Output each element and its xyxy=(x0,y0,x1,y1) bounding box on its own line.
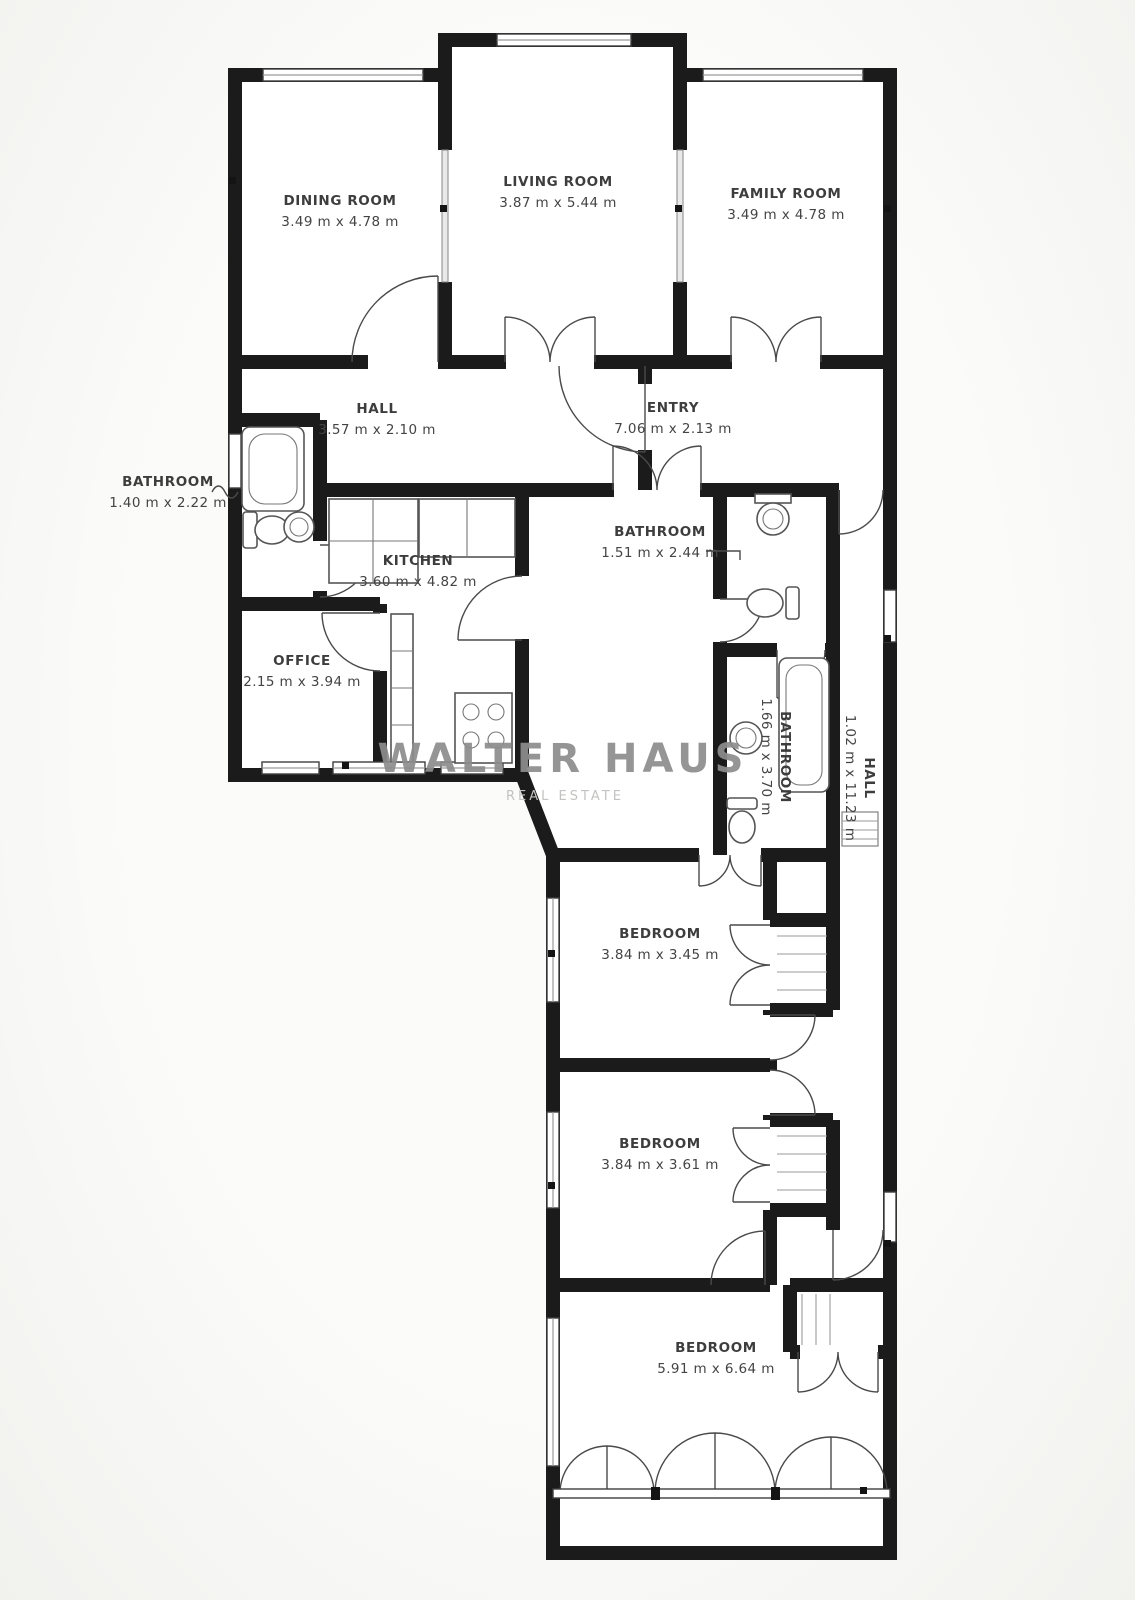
toilet-middle-bathroom xyxy=(747,587,799,619)
bathtub-left xyxy=(242,427,304,511)
svg-text:1.40 m x 2.22 m: 1.40 m x 2.22 m xyxy=(109,495,227,511)
glazed-partition-left xyxy=(442,150,448,282)
svg-text:1.66 m x 3.70 m: 1.66 m x 3.70 m xyxy=(758,698,774,816)
sink-middle-bathroom xyxy=(755,494,791,535)
toilet-inner-bathroom xyxy=(727,798,757,843)
svg-text:DINING ROOM: DINING ROOM xyxy=(283,193,396,209)
svg-text:5.91 m x 6.64 m: 5.91 m x 6.64 m xyxy=(657,1361,775,1377)
watermark-subtitle: REAL ESTATE xyxy=(506,789,624,804)
svg-text:1.51 m x 2.44 m: 1.51 m x 2.44 m xyxy=(601,545,719,561)
svg-text:7.06 m x 2.13 m: 7.06 m x 2.13 m xyxy=(614,421,732,437)
svg-text:3.84 m x 3.61 m: 3.84 m x 3.61 m xyxy=(601,1157,719,1173)
svg-text:3.84 m x 3.45 m: 3.84 m x 3.45 m xyxy=(601,947,719,963)
room-label-bathroom-left: BATHROOM 1.40 m x 2.22 m xyxy=(109,474,238,511)
svg-text:BEDROOM: BEDROOM xyxy=(619,926,701,942)
glazed-partition-right xyxy=(677,150,683,282)
svg-text:3.49 m x 4.78 m: 3.49 m x 4.78 m xyxy=(727,207,845,223)
watermark-title: WALTER HAUS xyxy=(378,736,749,782)
svg-text:BATHROOM: BATHROOM xyxy=(614,524,706,540)
balcony-sill xyxy=(553,1487,890,1500)
svg-text:ENTRY: ENTRY xyxy=(647,400,699,416)
svg-text:2.15 m x 3.94 m: 2.15 m x 3.94 m xyxy=(243,674,361,690)
svg-text:3.87 m x 5.44 m: 3.87 m x 5.44 m xyxy=(499,195,617,211)
svg-text:HALL: HALL xyxy=(861,757,877,798)
svg-text:BEDROOM: BEDROOM xyxy=(619,1136,701,1152)
svg-text:3.49 m x 4.78 m: 3.49 m x 4.78 m xyxy=(281,214,399,230)
svg-text:KITCHEN: KITCHEN xyxy=(383,553,454,569)
sink-left xyxy=(284,512,314,542)
svg-text:1.02 m x 11.23 m: 1.02 m x 11.23 m xyxy=(842,715,858,842)
svg-text:BATHROOM: BATHROOM xyxy=(122,474,214,490)
svg-text:LIVING ROOM: LIVING ROOM xyxy=(503,174,613,190)
svg-text:BEDROOM: BEDROOM xyxy=(675,1340,757,1356)
svg-text:BATHROOM: BATHROOM xyxy=(777,711,793,803)
svg-text:FAMILY ROOM: FAMILY ROOM xyxy=(731,186,842,202)
svg-text:OFFICE: OFFICE xyxy=(273,653,331,669)
svg-text:3.57 m x 2.10 m: 3.57 m x 2.10 m xyxy=(318,422,436,438)
svg-text:HALL: HALL xyxy=(356,401,397,417)
floor-plan-canvas: DINING ROOM 3.49 m x 4.78 m LIVING ROOM … xyxy=(0,0,1135,1600)
svg-text:3.60 m x 4.82 m: 3.60 m x 4.82 m xyxy=(359,574,477,590)
